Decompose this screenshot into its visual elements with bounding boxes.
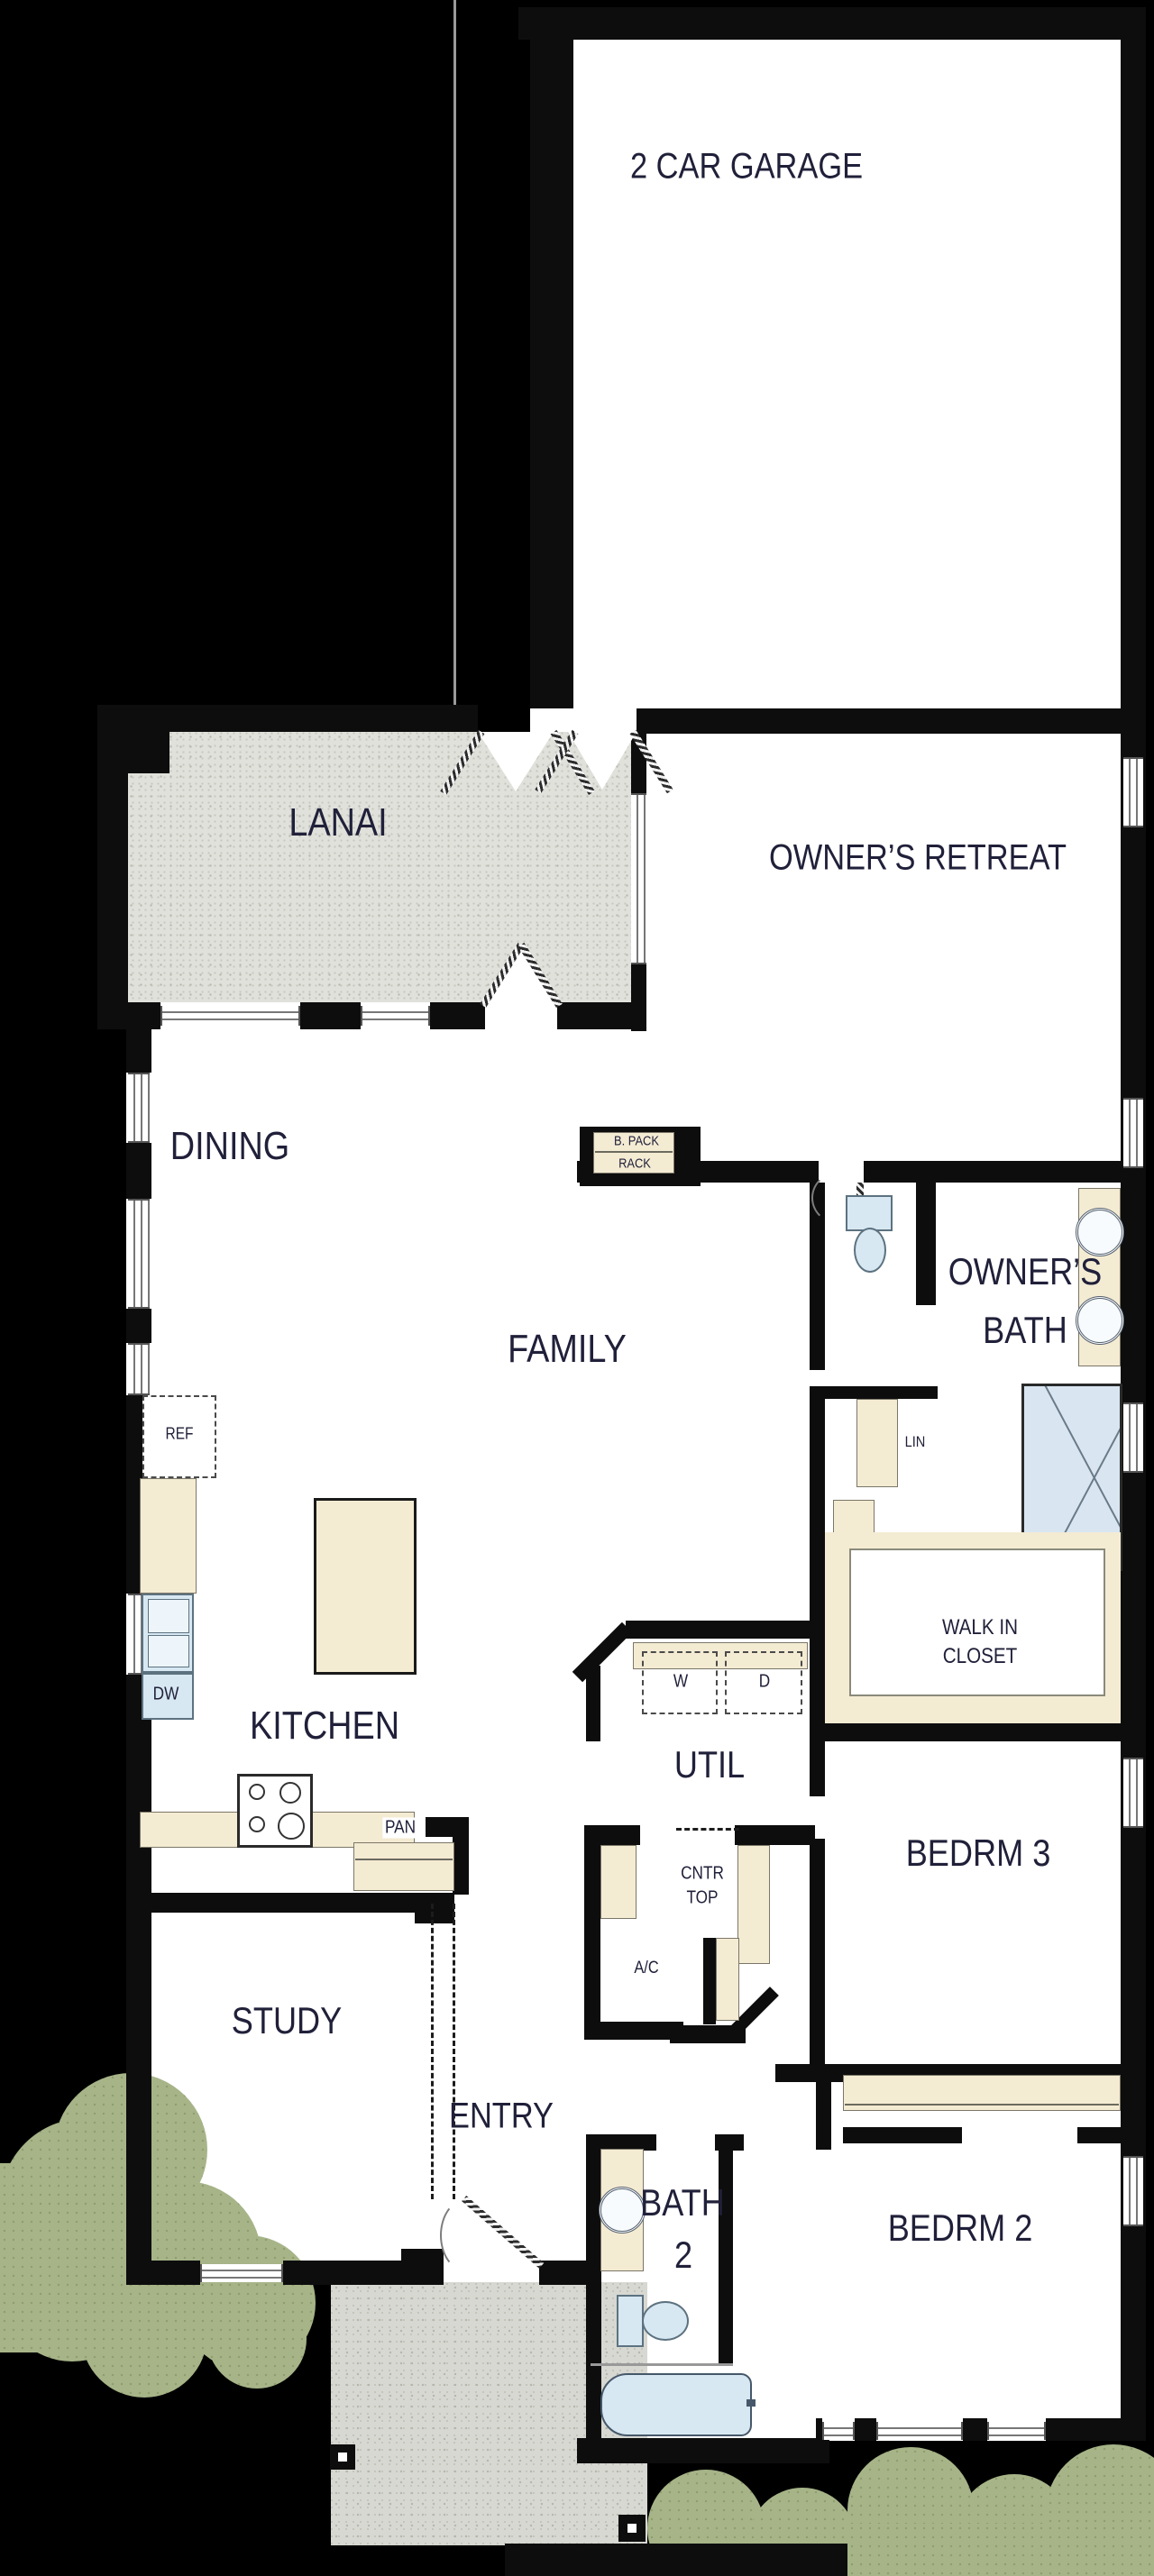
window <box>1123 1758 1143 1828</box>
porch-step-edge <box>505 2544 847 2576</box>
cased-opening <box>431 1904 434 2199</box>
cntr-top-cabinet <box>737 1845 770 1964</box>
window <box>200 2264 283 2282</box>
room-label-bath2-1: BATH <box>640 2181 725 2224</box>
tub-faucet <box>746 2399 756 2407</box>
wall-segment <box>577 2438 829 2463</box>
bath2-sink <box>599 2187 646 2233</box>
cased-opening <box>453 1904 455 2199</box>
wall-segment <box>283 2261 401 2285</box>
wall-segment <box>518 7 1121 40</box>
kitchen-island <box>314 1498 417 1675</box>
fixture-label-dryer: D <box>759 1672 770 1693</box>
wall-segment <box>126 1893 424 1913</box>
wall-segment <box>916 1177 936 1305</box>
wall-segment <box>719 2134 733 2366</box>
wall-segment <box>963 2418 987 2441</box>
lanai-paving <box>126 732 631 1002</box>
room-label-kitchen: KITCHEN <box>250 1704 399 1749</box>
burner <box>249 1784 265 1800</box>
window <box>1123 1098 1143 1168</box>
fixture-label-bpack-2: RACK <box>618 1156 651 1172</box>
bedroom2-closet-shelf <box>843 2075 1121 2111</box>
porch-column-core <box>627 2524 637 2533</box>
burner <box>278 1813 305 1840</box>
shelf-line <box>595 1151 673 1153</box>
room-label-walk-in-closet-2: CLOSET <box>943 1644 1018 1669</box>
room-label-lanai: LANAI <box>288 800 387 845</box>
wall-segment <box>530 7 573 708</box>
shrub <box>0 2163 63 2352</box>
toilet-bowl <box>854 1228 886 1273</box>
floor-plan: 2 CAR GARAGE LANAI OWNER’S RETREAT DININ… <box>0 0 1154 2576</box>
wall-segment <box>816 2064 831 2150</box>
wall-segment <box>1077 2127 1121 2143</box>
window <box>361 1006 430 1026</box>
shelf-line <box>355 1859 453 1860</box>
wall-segment <box>126 1143 151 1199</box>
wall-segment <box>126 1002 151 1073</box>
wall-segment <box>864 1161 1121 1183</box>
wall-segment <box>816 1722 1121 1741</box>
vanity-sink <box>1076 1208 1124 1256</box>
room-label-bedroom3: BEDRM 3 <box>906 1832 1051 1875</box>
shrub <box>207 2289 307 2389</box>
room-label-family: FAMILY <box>508 1327 627 1372</box>
burner <box>279 1782 301 1804</box>
room-label-owners-retreat: OWNER’S RETREAT <box>769 838 1067 879</box>
fixture-label-cntr-top-1: CNTR <box>681 1864 724 1885</box>
wall-segment <box>401 2249 444 2285</box>
wall-segment <box>1121 7 1146 2441</box>
porch-column-core <box>338 2453 347 2462</box>
wall-segment <box>126 1675 151 2285</box>
toilet-tank <box>846 1195 893 1231</box>
pantry-shelf <box>353 1842 454 1891</box>
wall-segment <box>855 2418 876 2441</box>
fixture-label-bpack-1: B. PACK <box>614 1134 659 1149</box>
sink-basin <box>148 1599 189 1633</box>
kitchen-sink <box>142 1594 194 1673</box>
wall-segment <box>584 2022 683 2040</box>
wall-segment <box>300 1002 361 1029</box>
fixture-label-ac: A/C <box>634 1959 658 1978</box>
wall-segment <box>810 1386 938 1399</box>
wall-segment <box>631 964 646 1031</box>
wall-segment <box>670 2025 746 2043</box>
kitchen-counter <box>140 1478 197 1594</box>
room-label-entry: ENTRY <box>449 2096 554 2137</box>
wall-segment <box>539 2261 590 2285</box>
wall-segment <box>586 1666 600 1741</box>
room-label-owners-bath-1: OWNER’S <box>948 1250 1103 1293</box>
wall-segment <box>735 1825 815 1845</box>
shrub <box>81 2271 207 2398</box>
wall-segment <box>843 2127 962 2143</box>
fixture-label-lin: LIN <box>905 1433 926 1451</box>
shelf-line <box>845 2104 1119 2106</box>
site-edge-line <box>453 0 456 710</box>
room-label-garage: 2 CAR GARAGE <box>630 147 863 187</box>
bathtub <box>600 2373 752 2436</box>
sink-basin <box>148 1635 189 1667</box>
room-label-bedroom2: BEDRM 2 <box>888 2206 1033 2250</box>
range <box>237 1774 313 1848</box>
vanity-sink <box>1076 1296 1124 1345</box>
wall-segment <box>584 1825 600 2023</box>
shower-glass-line <box>1021 1384 1122 1531</box>
toilet-tank <box>617 2295 644 2347</box>
window <box>128 1343 150 1395</box>
window <box>128 1073 150 1143</box>
wall-segment <box>415 1893 454 1923</box>
cased-opening <box>676 1828 739 1831</box>
room-label-study: STUDY <box>232 1999 342 2042</box>
wall-segment <box>97 705 128 1029</box>
tub-alcove-line <box>591 2363 733 2366</box>
wall-segment <box>453 1817 469 1895</box>
wall-segment <box>810 1839 825 2066</box>
room-label-owners-bath-2: BATH <box>983 1309 1067 1352</box>
cntr-top-cabinet <box>600 1845 637 1919</box>
garage-floor <box>530 7 1146 732</box>
wall-segment <box>626 1621 815 1639</box>
window <box>822 2422 855 2440</box>
fixture-label-ref: REF <box>166 1425 194 1444</box>
burner <box>249 1816 265 1832</box>
window <box>1123 2156 1143 2226</box>
wall-segment <box>1046 2418 1121 2441</box>
window <box>128 1199 150 1309</box>
window <box>876 2422 963 2440</box>
room-label-walk-in-closet-1: WALK IN <box>942 1615 1018 1640</box>
window <box>1123 757 1143 827</box>
window <box>160 1006 300 1026</box>
fixture-label-dw: DW <box>153 1685 179 1705</box>
wall-segment <box>430 1002 485 1029</box>
wall-segment <box>816 2418 822 2441</box>
fixture-label-pan: PAN <box>382 1818 417 1839</box>
fixture-label-cntr-top-2: TOP <box>686 1888 718 1909</box>
wall-segment <box>810 1393 825 1618</box>
wall-segment <box>703 1938 716 2024</box>
ac-closet-shelf <box>716 1938 739 2021</box>
window <box>631 793 646 964</box>
wall-segment <box>586 2134 601 2438</box>
toilet-bowl <box>642 2301 689 2341</box>
room-label-util: UTIL <box>674 1743 745 1786</box>
window <box>1123 1402 1143 1473</box>
wall-segment <box>97 705 478 732</box>
wall-segment <box>637 708 1121 734</box>
fixture-label-washer: W <box>673 1672 688 1693</box>
room-label-bath2-2: 2 <box>674 2233 692 2277</box>
window <box>987 2422 1046 2440</box>
wall-segment <box>126 1309 151 1343</box>
linen-shelf <box>856 1399 898 1487</box>
wall-segment <box>810 1618 825 1796</box>
room-label-dining: DINING <box>170 1124 289 1169</box>
